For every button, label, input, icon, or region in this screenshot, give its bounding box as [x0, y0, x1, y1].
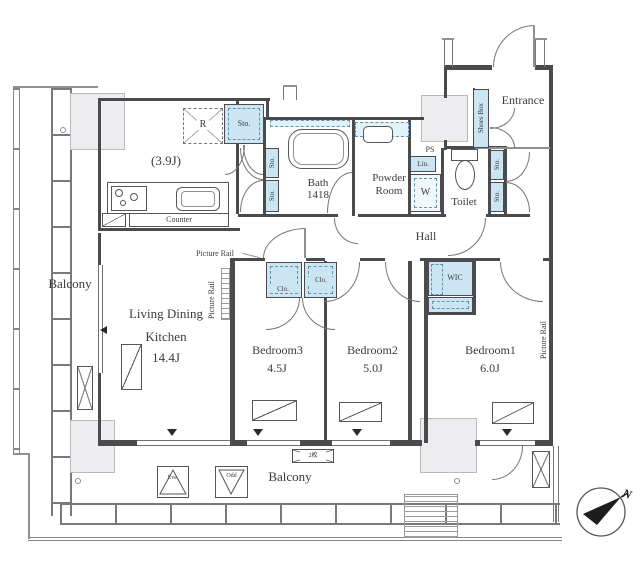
- drain-icon: [75, 478, 81, 484]
- balcony-door-arc: [492, 446, 523, 480]
- wall: [473, 258, 476, 315]
- wall: [98, 98, 270, 101]
- counter-label: Counter: [129, 213, 229, 227]
- burner-icon: [115, 189, 123, 197]
- storage-door-arc: [506, 152, 530, 182]
- wall: [360, 258, 385, 261]
- bedroom2-size-label: 5.0J: [355, 362, 391, 374]
- picture-rail-label: Picture Rail: [208, 281, 216, 319]
- entrance-door-arc: [493, 25, 535, 67]
- column: [421, 95, 468, 142]
- window-marker-icon: [502, 429, 512, 436]
- window-marker-icon: [100, 326, 107, 334]
- wall: [98, 440, 138, 446]
- closet-label: Clo.: [306, 277, 336, 284]
- panel-label: 2枚: [300, 450, 326, 462]
- storage-door-arc: [225, 145, 245, 175]
- shoesbox-door-arc: [490, 127, 515, 148]
- ac-unit-symbol: [532, 451, 550, 488]
- shoes-box-label: Shoes Box: [478, 103, 485, 133]
- wall: [300, 440, 333, 446]
- ldk-size-label: 14.4J: [146, 351, 186, 364]
- balcony-edge-line: [28, 455, 30, 539]
- hall-door-leaf: [304, 228, 306, 258]
- wall-stub: [283, 85, 297, 87]
- toilet-door-arc: [448, 218, 486, 256]
- entrance-door-leaf: [533, 25, 535, 67]
- window-symbol: [121, 344, 142, 390]
- pipe-space-label: PS: [421, 146, 439, 154]
- storage-label: Sto.: [494, 159, 501, 170]
- storage-box: Sto.: [490, 150, 504, 180]
- wall-stub: [444, 40, 453, 67]
- pipe-space-box: [102, 213, 126, 227]
- washer-label: W: [410, 174, 441, 212]
- wall: [98, 373, 101, 395]
- picture-rail-label: Picture Rail: [186, 250, 244, 258]
- kitchen-sink-inner: [181, 191, 215, 207]
- storage-box: Sto.: [490, 182, 504, 212]
- toilet-label: Toilet: [446, 197, 482, 208]
- shoesbox-door-arc: [490, 108, 515, 129]
- wic-lower-box: [428, 297, 473, 313]
- storage-label: Sto.: [269, 190, 276, 201]
- picture-rail-label-vertical: Picture Rail: [538, 306, 550, 374]
- bath-upper-cabinet: [270, 120, 350, 127]
- hatch-label: Odd: [215, 470, 248, 482]
- storage-box: Sto.: [265, 180, 279, 212]
- entrance-label: Entrance: [494, 94, 552, 106]
- ac-unit-symbol: [77, 366, 93, 410]
- wall: [98, 98, 101, 230]
- left-balcony-railing: [51, 88, 72, 516]
- storage-door-arc: [506, 182, 530, 212]
- bottom-balcony-railing: [60, 503, 560, 525]
- drain-icon: [60, 127, 66, 133]
- ldk-label2: Kitchen: [138, 330, 194, 343]
- window-symbol: [339, 402, 382, 422]
- wall: [306, 258, 325, 261]
- window: [332, 440, 392, 446]
- bathtub-inner: [293, 133, 344, 165]
- storage-door-arc: [240, 180, 263, 212]
- wall-stub: [283, 85, 297, 100]
- window-symbol: [492, 402, 534, 424]
- wall: [543, 258, 553, 261]
- storage-label: Sto.: [494, 191, 501, 202]
- closet-label: Clo.: [268, 286, 298, 293]
- powder-label2: Room: [365, 186, 413, 197]
- shoes-box: Shoes Box: [473, 89, 489, 148]
- bath-label: Bath: [300, 178, 336, 189]
- floor-plan: Counter R Sto. Sto. Sto. Shoes Box Sto. …: [0, 0, 640, 569]
- refrigerator-label: R: [197, 120, 209, 130]
- wall: [266, 98, 269, 119]
- hall-door-arc: [263, 228, 306, 258]
- storage-label: Sto.: [269, 157, 276, 168]
- wall: [230, 258, 265, 261]
- window: [247, 440, 302, 446]
- drain-icon: [454, 478, 460, 484]
- window-marker-icon: [253, 429, 263, 436]
- closet-door-arc: [302, 298, 335, 330]
- column: [420, 418, 477, 473]
- bath-size-label: 1418: [300, 190, 336, 201]
- toilet-bowl: [455, 160, 475, 190]
- wall: [98, 228, 240, 231]
- balcony-bottom-label: Balcony: [262, 470, 318, 483]
- wall: [444, 70, 447, 98]
- linen-label: Lin.: [410, 156, 436, 172]
- burner-icon: [130, 193, 138, 201]
- wall-stub: [535, 40, 545, 67]
- bedroom2-door-arc: [385, 262, 420, 302]
- storage-box: Sto.: [265, 148, 279, 178]
- window-symbol: [252, 400, 297, 421]
- closet-door-arc: [266, 298, 300, 330]
- wall: [549, 65, 553, 446]
- powder-label: Powder: [365, 173, 413, 184]
- hall-label: Hall: [406, 230, 446, 242]
- powder-sink: [363, 126, 393, 143]
- wall-stub: [533, 38, 547, 40]
- balcony-left-label: Balcony: [44, 277, 96, 290]
- picture-rail-label-vertical: Picture Rail: [206, 266, 218, 334]
- picture-rail-strip: [221, 268, 230, 320]
- column: [70, 420, 115, 473]
- balcony-side-wall: [553, 446, 559, 522]
- bedroom1-door-arc: [500, 262, 543, 302]
- storage-label: Sto.: [224, 104, 264, 144]
- bedroom1-size-label: 6.0J: [472, 362, 508, 374]
- wall: [230, 258, 235, 446]
- window-marker-icon: [167, 429, 177, 436]
- wall-stub: [442, 38, 454, 40]
- window-marker-icon: [352, 429, 362, 436]
- kitchen-size-label: (3.9J): [140, 154, 192, 167]
- wall: [98, 233, 101, 265]
- bedroom1-label: Bedroom1: [458, 344, 523, 356]
- picture-rail-label: Picture Rail: [540, 321, 548, 359]
- wall: [98, 395, 101, 446]
- ldk-label: Living Dining: [120, 307, 212, 320]
- wic-label: WIC: [440, 274, 470, 282]
- bedroom3-size-label: 4.5J: [259, 362, 295, 374]
- balcony-outer-line: [28, 537, 562, 541]
- hatch-label: Eve.: [157, 472, 189, 484]
- balcony-partition-panel: [404, 494, 458, 538]
- wall: [535, 440, 553, 446]
- window: [98, 265, 103, 373]
- burner-icon: [120, 200, 126, 206]
- wall: [358, 214, 446, 217]
- wall: [390, 440, 422, 446]
- wall: [238, 214, 338, 217]
- powder-door-arc: [334, 218, 358, 244]
- bedroom2-label: Bedroom2: [340, 344, 405, 356]
- bedroom3-label: Bedroom3: [245, 344, 310, 356]
- wall: [486, 214, 530, 217]
- balcony-outer-wall: [13, 88, 20, 455]
- compass-icon: N: [575, 485, 637, 541]
- window: [137, 440, 231, 446]
- wall: [441, 148, 444, 216]
